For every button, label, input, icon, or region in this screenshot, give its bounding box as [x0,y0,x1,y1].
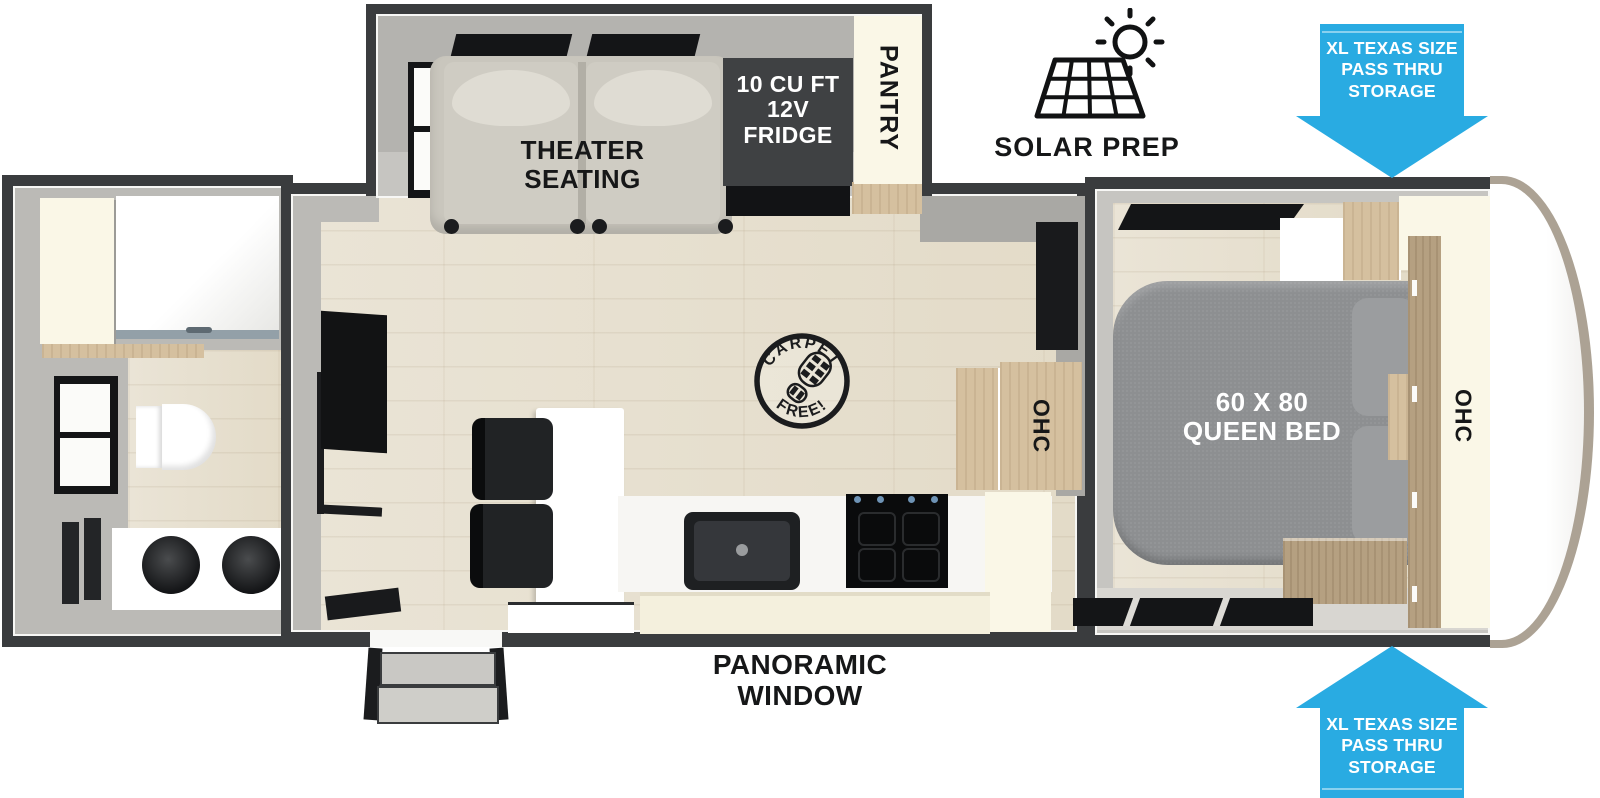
bed-headboard-wardrobe [1408,236,1444,628]
shower-door-handle [186,327,212,333]
bathroom-cabinet [40,198,114,344]
seat-foot-4 [718,219,733,234]
solar-panel-icon [1037,60,1143,116]
kitchen-end-cabinet [985,492,1051,632]
bathroom-window [54,376,118,494]
dinette-chair-1 [472,418,553,500]
bathroom-tall-cabinet-2 [84,518,101,600]
rv-floorplan: THEATER SEATING 10 CU FT 12V FRIDGE PANT… [0,0,1600,798]
bathroom-counter [42,344,204,358]
seat-foot-3 [592,219,607,234]
bathroom-tall-cabinet-1 [62,522,79,604]
wardrobe-cabinet [1036,222,1078,350]
shower [116,196,279,332]
entry-step-2 [377,686,499,724]
fridge-label: 10 CU FT 12V FRIDGE [723,72,853,148]
bedroom-mirror-door [1280,218,1343,284]
bedroom-ohc-label: OHC [1450,389,1477,443]
main-topleft-wall-face [321,196,379,222]
bottom-window-small [508,602,634,633]
fridge-door [726,186,850,216]
vessel-sink-left [142,536,200,594]
solar-prep-label: SOLAR PREP [967,133,1207,163]
dinette-chair-2 [470,504,553,588]
entry-step-1 [380,652,496,686]
bedroom-top-window [1118,204,1304,230]
pantry-label: PANTRY [874,45,903,151]
bedroom-overhead-cabinet [1343,202,1401,280]
queen-bed-label: 60 X 80 QUEEN BED [1152,388,1372,445]
tv-screen [321,311,387,454]
theater-seating-label: THEATER SEATING [455,136,710,193]
stove-cooktop [846,494,948,588]
kitchen-ohc-label: OHC [1028,399,1055,453]
pass-thru-bottom-label: XL TEXAS SIZE PASS THRU STORAGE [1292,714,1492,778]
kitchen-small-cabinet [956,368,998,490]
fridge-side-shelf [852,182,922,214]
kitchen-sink [684,512,800,590]
panoramic-window-label: PANORAMIC WINDOW [640,650,960,712]
vessel-sink-right [222,536,280,594]
panoramic-window-sill [640,592,990,634]
seat-foot-2 [570,219,585,234]
carpet-free-stamp: CARPET FREE! [752,331,852,431]
sink-drain [736,544,748,556]
pass-thru-top-label: XL TEXAS SIZE PASS THRU STORAGE [1292,38,1492,102]
entry-door-opening [370,630,502,647]
toilet-tank [136,406,162,468]
bedroom-dresser [1283,538,1407,604]
bedroom-bottom-window [1073,598,1313,626]
solar-prep-icon [1025,8,1175,133]
seat-foot-1 [444,219,459,234]
